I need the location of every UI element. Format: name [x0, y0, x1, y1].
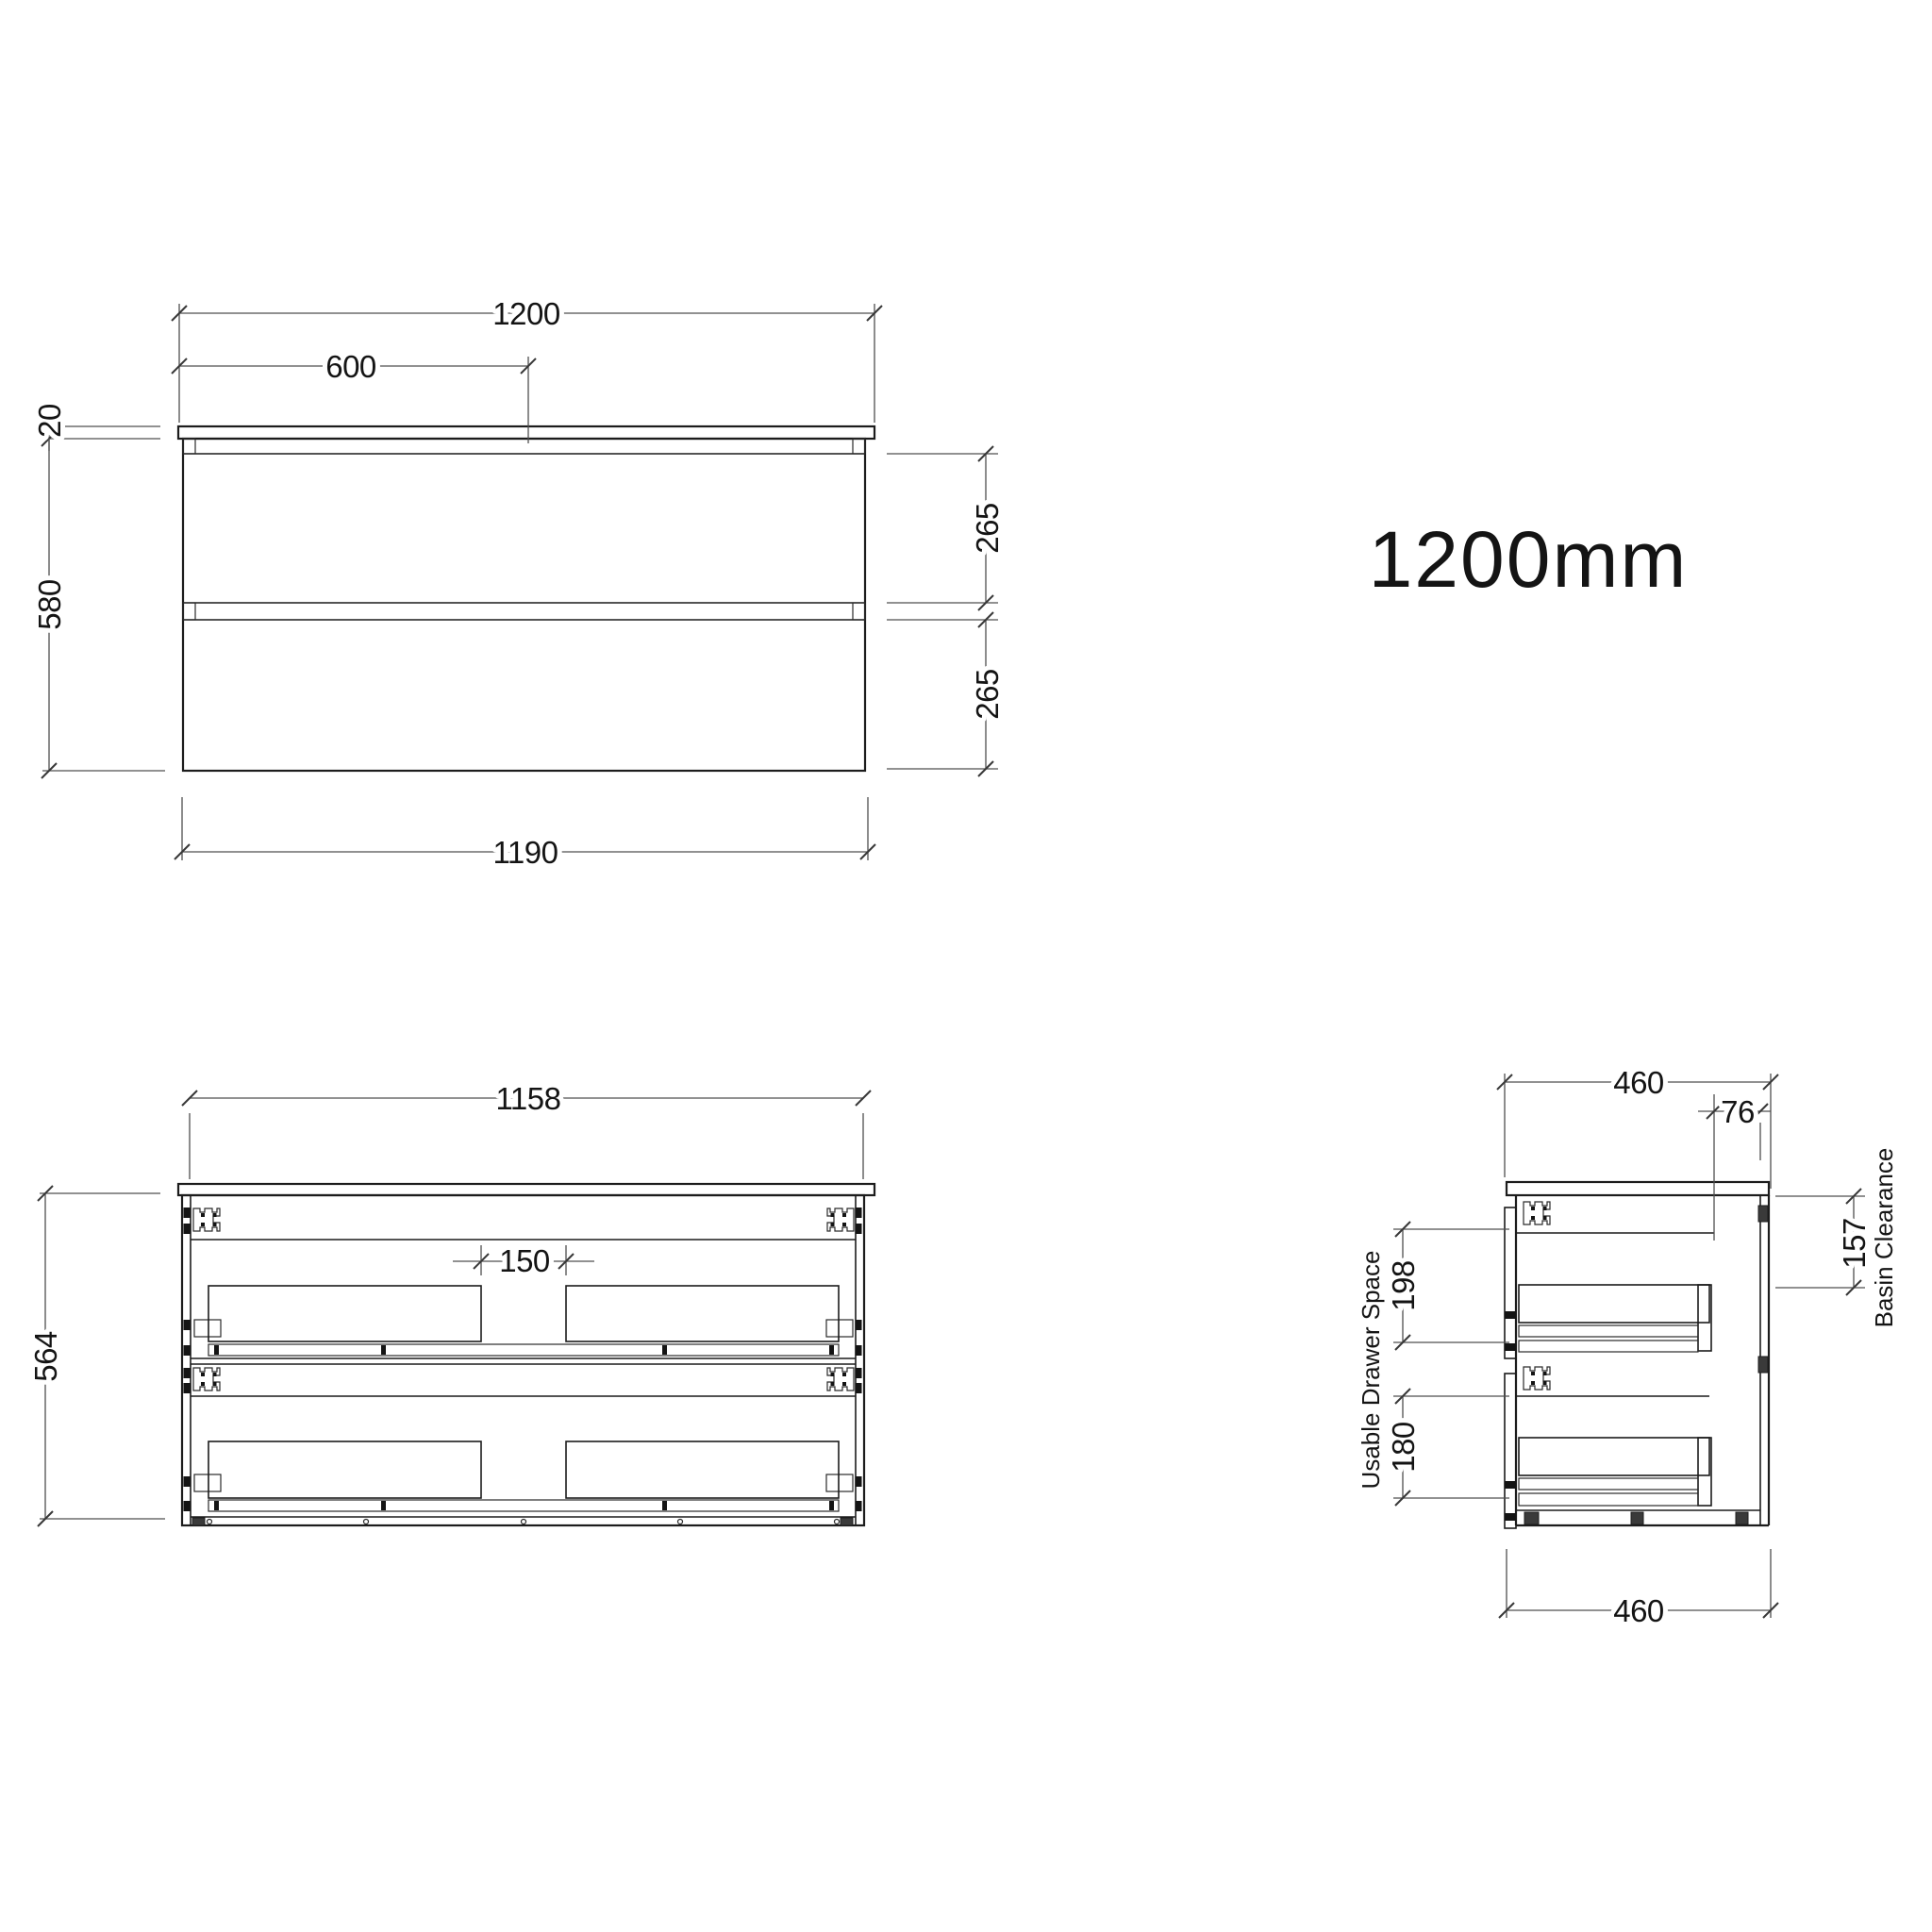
dim-counter-thickness: 20	[32, 404, 160, 451]
page-title: 1200mm	[1369, 515, 1689, 604]
dim-internal-width: 1158	[182, 1081, 871, 1179]
front-view: 1200 600 20 580 265	[32, 296, 1005, 870]
front-side-panel-tabs	[183, 439, 865, 620]
dim-top-drawer-space-label: 198	[1386, 1260, 1421, 1311]
dim-basin-gap: 150	[453, 1243, 594, 1278]
usable-drawer-space-text: Usable Drawer Space	[1357, 1251, 1385, 1490]
drawer-mount-clips	[193, 1208, 854, 1391]
dim-depth-bottom: 460	[1499, 1549, 1778, 1628]
dim-bottom-drawer-height: 265	[887, 612, 1005, 776]
dim-bottom-drawer-space-label: 180	[1386, 1422, 1421, 1473]
dim-basin-gap-label: 150	[499, 1243, 550, 1278]
side-drawer-clips	[1524, 1202, 1550, 1390]
base-fixing-points	[192, 1518, 853, 1525]
dim-counter-thickness-label: 20	[32, 404, 67, 438]
drawer-runner-rails	[208, 1344, 839, 1511]
front-cabinet-body	[183, 439, 865, 771]
back-panel-fixings	[1524, 1206, 1768, 1524]
dim-back-offset-label: 76	[1721, 1094, 1755, 1129]
dim-body-width-label: 1190	[493, 835, 558, 870]
dim-half-width-label: 600	[325, 349, 376, 384]
dim-total-width: 1200	[172, 296, 882, 423]
dim-cabinet-height-label: 580	[32, 579, 67, 630]
technical-drawing-page: 1200 600 20 580 265	[0, 0, 1932, 1932]
dim-top-drawer-space: 198	[1386, 1222, 1509, 1350]
dim-top-drawer-label: 265	[970, 503, 1005, 554]
open-view: 1158 564 150	[28, 1081, 874, 1526]
dim-bottom-drawer-label: 265	[970, 669, 1005, 720]
dim-internal-width-label: 1158	[496, 1081, 561, 1116]
dim-internal-height-label: 564	[28, 1331, 63, 1382]
dim-basin-clearance-label: 157	[1837, 1218, 1872, 1269]
runner-brackets	[194, 1320, 853, 1491]
open-countertop	[178, 1184, 874, 1195]
dim-basin-clearance: 157 Basin Clearance	[1775, 1148, 1898, 1328]
side-drawer-boxes	[1519, 1285, 1711, 1506]
dim-total-width-label: 1200	[492, 296, 560, 331]
front-countertop	[178, 426, 874, 439]
dim-bottom-drawer-space: 180	[1386, 1389, 1509, 1506]
vanity-dimension-drawing: 1200 600 20 580 265	[0, 0, 1932, 1932]
dim-depth-top-label: 460	[1613, 1065, 1664, 1100]
dim-half-width: 600	[172, 349, 536, 443]
dim-top-drawer-height: 265	[887, 446, 1005, 610]
dim-internal-height: 564	[28, 1186, 165, 1526]
side-view: 460 76 157 Basin Clearance 198	[1357, 1065, 1898, 1628]
side-countertop	[1507, 1182, 1769, 1195]
drawer-back-panels	[208, 1286, 839, 1498]
dim-depth-bottom-label: 460	[1613, 1593, 1664, 1628]
dim-body-width: 1190	[175, 797, 875, 870]
basin-clearance-text: Basin Clearance	[1870, 1148, 1898, 1328]
side-drawer-fronts	[1505, 1207, 1516, 1528]
dim-cabinet-height: 580	[32, 439, 165, 778]
